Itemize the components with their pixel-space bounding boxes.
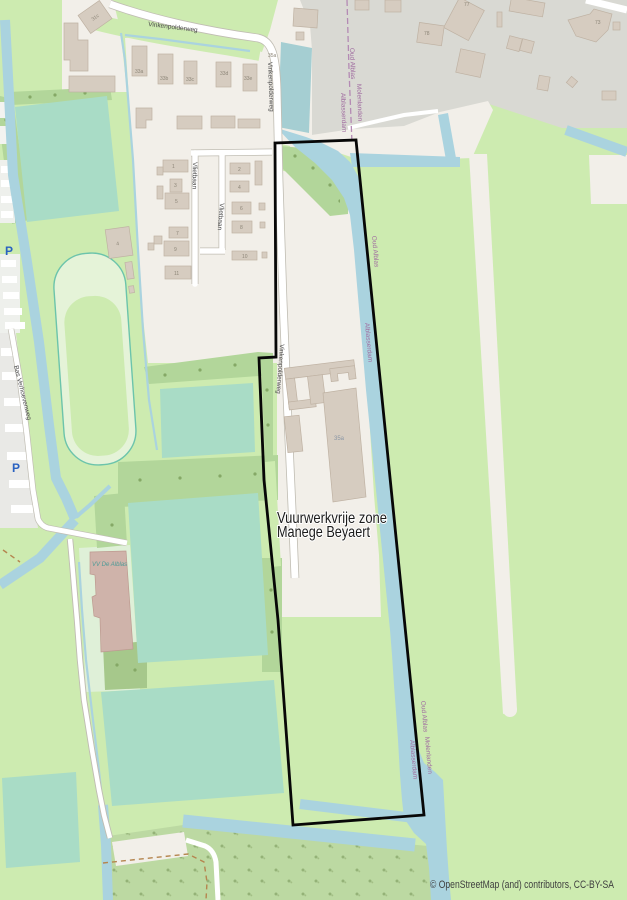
svg-text:Molenlanden: Molenlanden [355,84,363,122]
svg-text:P: P [5,244,13,258]
svg-text:33c: 33c [186,77,195,83]
svg-text:6: 6 [240,206,243,212]
svg-text:11: 11 [174,271,179,277]
svg-text:78: 78 [424,31,430,37]
svg-text:2: 2 [238,167,241,173]
svg-text:73: 73 [595,20,601,26]
svg-text:33e: 33e [244,76,253,82]
svg-text:33a: 33a [135,69,144,75]
svg-text:33b: 33b [160,76,169,82]
svg-text:4: 4 [238,185,241,191]
svg-text:35a: 35a [334,436,345,442]
svg-text:3: 3 [174,183,177,189]
svg-text:1: 1 [172,164,175,170]
svg-text:33d: 33d [220,71,229,77]
svg-text:VV De Alblas: VV De Alblas [92,562,127,568]
svg-text:P: P [12,461,20,475]
svg-text:Manege Beyaert: Manege Beyaert [277,524,370,541]
svg-text:5: 5 [175,199,178,205]
svg-text:9: 9 [174,247,177,253]
svg-text:© OpenStreetMap (and) contribu: © OpenStreetMap (and) contributors, CC-B… [430,879,615,891]
svg-text:Vlietbaan: Vlietbaan [191,162,198,190]
svg-text:7: 7 [176,231,179,237]
svg-text:77: 77 [464,2,470,8]
svg-text:8: 8 [240,225,243,231]
svg-text:Alblasserdam: Alblasserdam [339,93,347,133]
svg-text:Oud Alblas: Oud Alblas [348,48,356,80]
svg-text:10: 10 [242,254,248,260]
svg-text:35a: 35a [268,53,277,59]
